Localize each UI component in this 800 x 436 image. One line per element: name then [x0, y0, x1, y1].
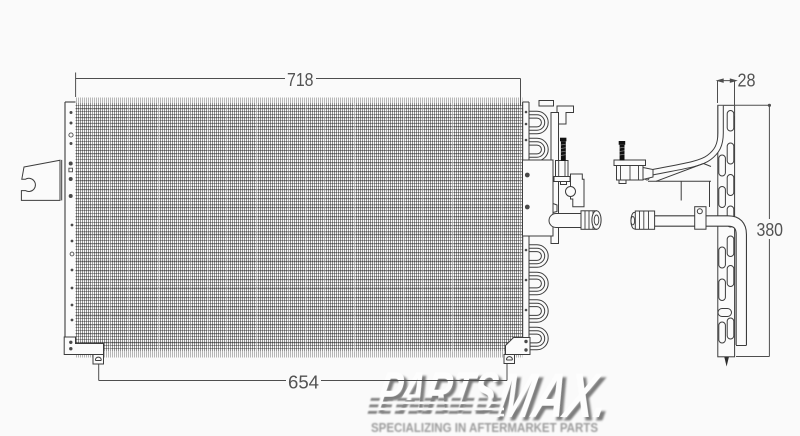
svg-text:654: 654	[288, 372, 319, 393]
svg-text:380: 380	[757, 219, 784, 240]
svg-text:SPECIALIZING IN AFTERMARKET PA: SPECIALIZING IN AFTERMARKET PARTS	[371, 421, 598, 435]
svg-text:28: 28	[738, 70, 756, 91]
svg-text:718: 718	[287, 69, 314, 90]
